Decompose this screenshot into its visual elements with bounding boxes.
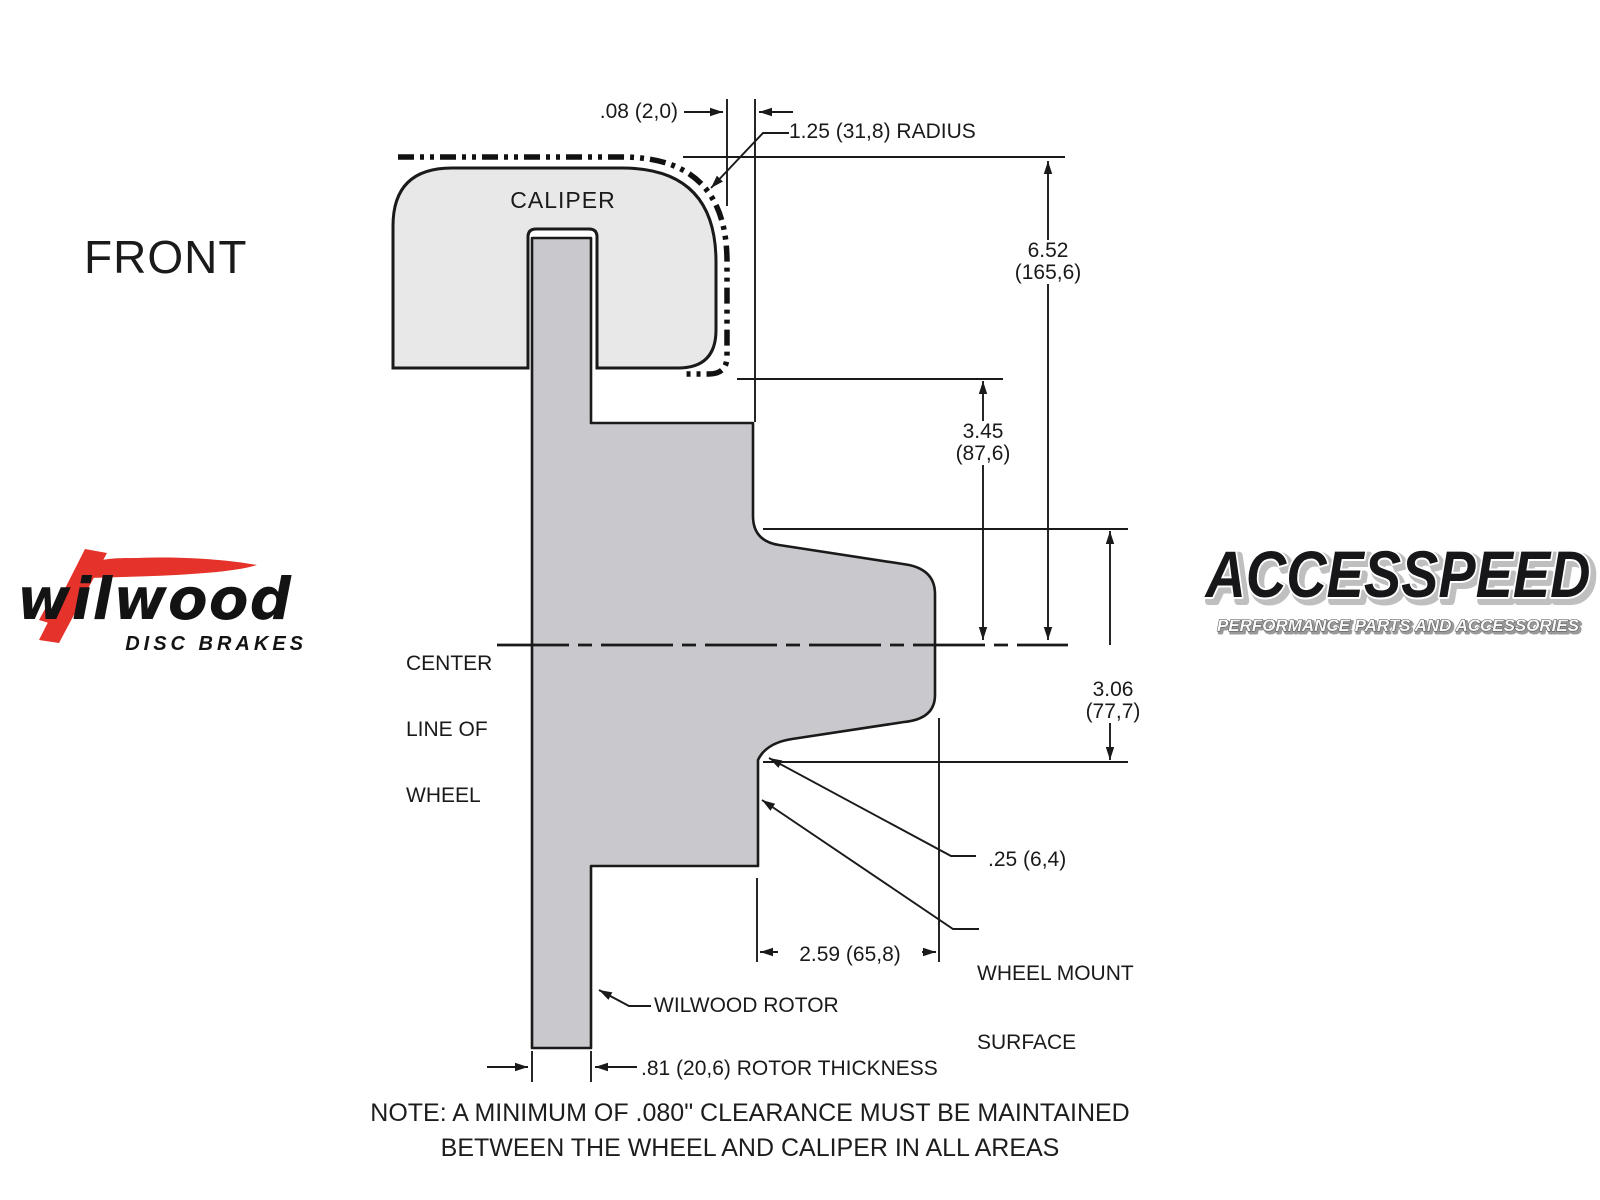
caliper-label: CALIPER	[508, 189, 618, 211]
accesspeed-logo-art: ACCESSPEED ACCESSPEED PERFORMANCE PARTS …	[1198, 535, 1598, 650]
clearance-note-line1: NOTE: A MINIMUM OF .080" CLEARANCE MUST …	[365, 1096, 1135, 1131]
dim-rotor-thickness: .81 (20,6) ROTOR THICKNESS	[641, 1058, 938, 1080]
view-label: FRONT	[84, 246, 247, 268]
dim-center-to-mount-in: 3.06	[1063, 679, 1163, 701]
wheel-mount-leader	[762, 800, 979, 929]
accesspeed-tagline: PERFORMANCE PARTS AND ACCESSORIES	[1217, 616, 1580, 635]
flange-leader	[769, 758, 976, 856]
wheel-mount-surface-line1: WHEEL MOUNT	[977, 962, 1134, 985]
radius-leader	[711, 133, 789, 188]
dim-caliper-height: 6.52 (165,6)	[996, 240, 1100, 284]
wilwood-tagline: DISC BRAKES	[15, 633, 307, 656]
dim-mount-depth: 2.59 (65,8)	[778, 944, 922, 966]
dim-caliper-to-center-mm: (87,6)	[933, 443, 1033, 465]
wheel-mount-surface-line2: SURFACE	[977, 1031, 1134, 1054]
dim-center-to-mount-mm: (77,7)	[1063, 701, 1163, 723]
accesspeed-wordmark: ACCESSPEED	[1204, 537, 1591, 611]
centerline-label-line1: CENTER	[406, 653, 492, 675]
wheel-mount-surface-label: WHEEL MOUNT SURFACE	[977, 916, 1134, 1077]
dim-flange-offset: .25 (6,4)	[986, 849, 1068, 871]
dim-caliper-height-mm: (165,6)	[998, 262, 1098, 284]
wilwood-logo: wilwood DISC BRAKES	[15, 545, 315, 657]
centerline-label: CENTER LINE OF WHEEL	[406, 609, 492, 829]
dim-caliper-to-center-in: 3.45	[933, 421, 1033, 443]
wilwood-wordmark: wilwood	[17, 565, 292, 633]
clearance-note-line2: BETWEEN THE WHEEL AND CALIPER IN ALL ARE…	[365, 1131, 1135, 1166]
accesspeed-logo: ACCESSPEED ACCESSPEED PERFORMANCE PARTS …	[1198, 535, 1598, 650]
rotor-label: WILWOOD ROTOR	[654, 995, 839, 1017]
dim-caliper-to-center: 3.45 (87,6)	[931, 421, 1035, 465]
dim-caliper-radius: 1.25 (31,8) RADIUS	[789, 121, 976, 143]
dim-caliper-wheel-clearance: .08 (2,0)	[556, 101, 678, 123]
page: { "colors": { "background": "#ffffff", "…	[0, 0, 1600, 1200]
dim-caliper-height-in: 6.52	[998, 240, 1098, 262]
centerline-label-line3: WHEEL	[406, 785, 492, 807]
rotor-hub-shape	[532, 238, 935, 1048]
rotor-leader	[599, 990, 651, 1006]
clearance-note: NOTE: A MINIMUM OF .080" CLEARANCE MUST …	[365, 1096, 1135, 1166]
centerline-label-line2: LINE OF	[406, 719, 492, 741]
dim-center-to-mount: 3.06 (77,7)	[1061, 679, 1165, 723]
